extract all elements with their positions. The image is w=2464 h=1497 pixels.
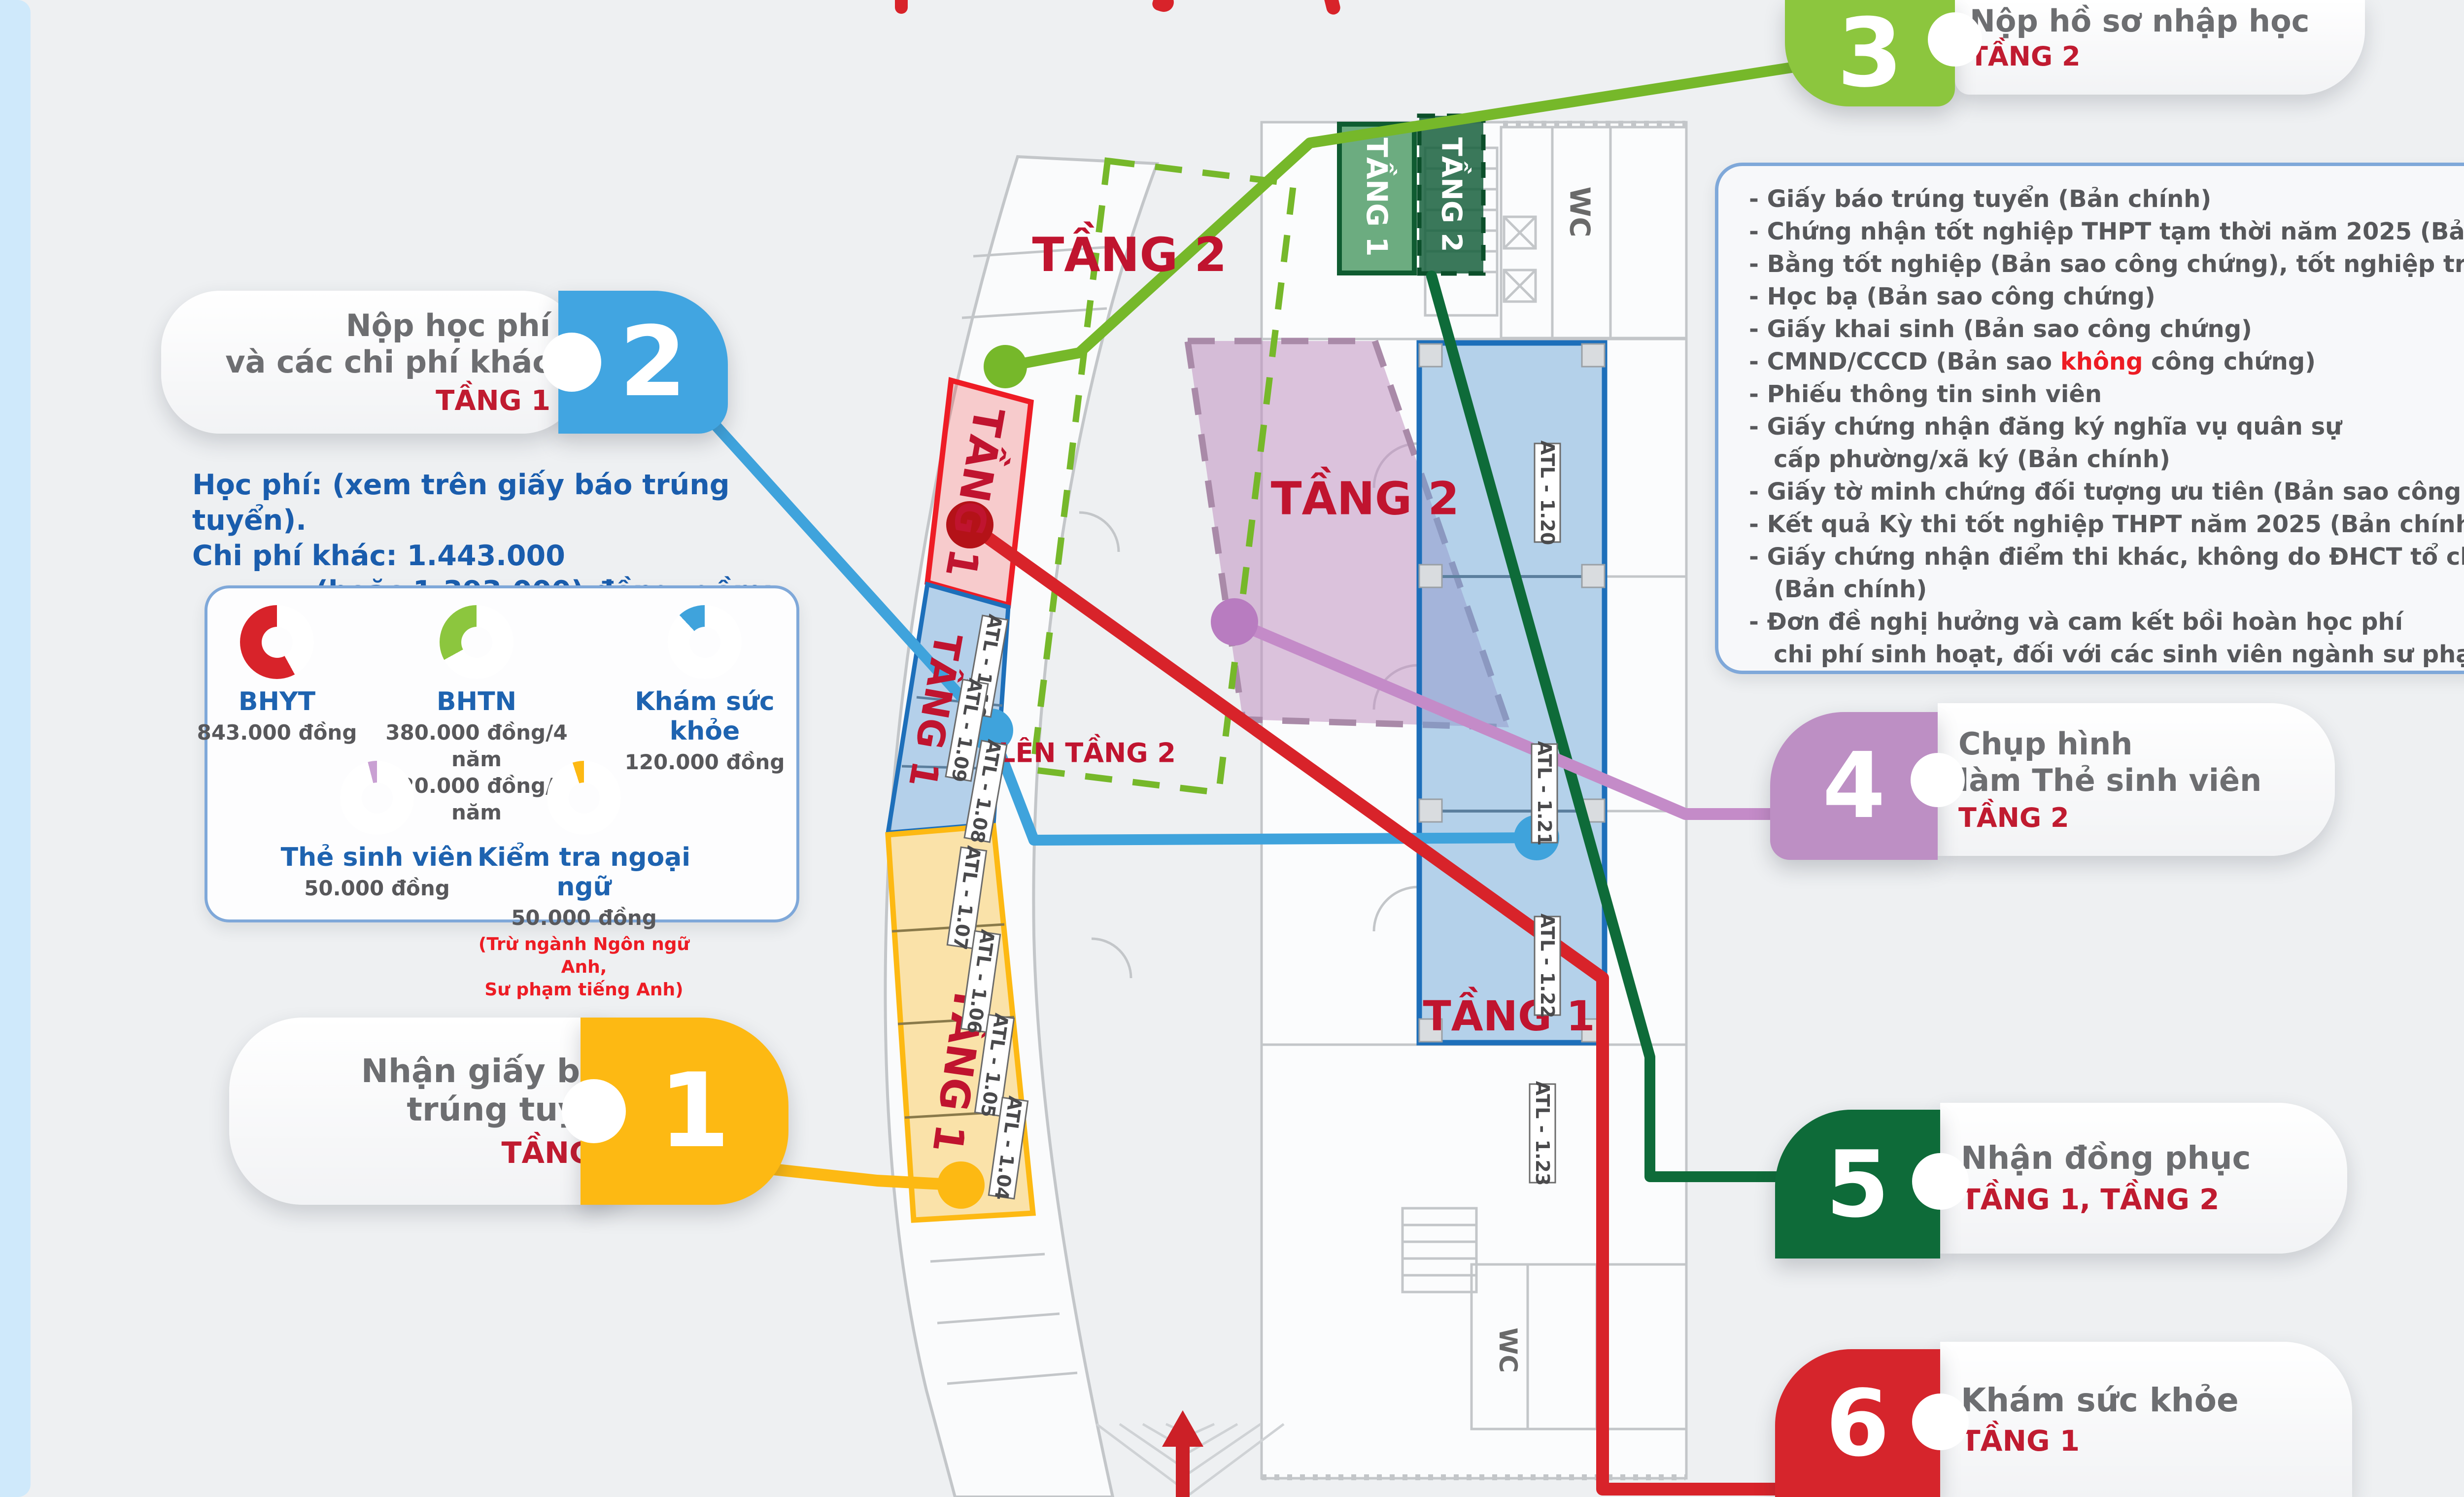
fee-amount: 50.000 đồng xyxy=(468,905,700,931)
doc-line: - Kết quả Kỳ thi tốt nghiệp THPT năm 202… xyxy=(1749,508,2464,541)
step4-title-line1: Chụp hình xyxy=(1958,726,2335,762)
step6-card: Khám sức khỏe TẦNG 1 xyxy=(1940,1342,2352,1497)
step4-card: Chụp hình làm Thẻ sinh viên TẦNG 2 xyxy=(1938,703,2335,856)
step2-card: Nộp học phí và các chi phí khác TẦNG 1 xyxy=(161,291,581,434)
fee-amount: 50.000 đồng xyxy=(261,875,493,902)
label-tang2-green-box: TẦNG 2 xyxy=(1436,137,1471,252)
fee-note: Sư phạm tiếng Anh) xyxy=(468,979,700,1001)
step1-number: 1 xyxy=(659,1052,730,1171)
label-len-tang2: LÊN TẦNG 2 xyxy=(998,734,1176,769)
svg-text:ATL - 1.21: ATL - 1.21 xyxy=(1534,741,1555,846)
doc-line: - Phiếu thông tin sinh viên xyxy=(1749,378,2464,410)
dot-step1 xyxy=(937,1161,985,1209)
svg-text:ATL - 1.22: ATL - 1.22 xyxy=(1537,914,1558,1019)
step6-title-line1: Khám sức khỏe xyxy=(1961,1381,2352,1420)
doc-line: - Giấy chứng nhận điểm thi khác, không d… xyxy=(1749,541,2464,573)
step4-floor: TẦNG 2 xyxy=(1958,802,2335,833)
fee-bhyt: BHYT 843.000 đồng xyxy=(173,605,380,746)
fee-name: Khám sức khỏe xyxy=(604,687,806,746)
title-fragment xyxy=(1321,0,1341,15)
doc-line: - Học bạ (Bản sao công chứng) xyxy=(1749,280,2464,313)
fee-note: (Trừ ngành Ngôn ngữ Anh, xyxy=(468,933,700,979)
step3-number: 3 xyxy=(1837,0,1903,108)
step6-floor: TẦNG 1 xyxy=(1961,1424,2352,1458)
room-label-atl-1-21: ATL - 1.21 xyxy=(1532,741,1557,846)
svg-text:ATL - 1.20: ATL - 1.20 xyxy=(1537,441,1558,545)
dot-step3 xyxy=(984,345,1027,388)
step2-floor: TẦNG 1 xyxy=(161,385,550,417)
step3-title-line1: Nộp hồ sơ nhập học xyxy=(1970,3,2365,39)
kiem-tra-ngoai-ngu-donut-chart xyxy=(547,761,621,835)
step4-number: 4 xyxy=(1822,733,1885,839)
step5-notch xyxy=(1912,1153,1969,1210)
doc-line: - Giấy chứng nhận đăng ký nghĩa vụ quân … xyxy=(1749,410,2464,443)
step6-notch xyxy=(1912,1394,1969,1450)
doc-line: - Bằng tốt nghiệp (Bản sao công chứng), … xyxy=(1749,248,2464,280)
tuition-line1: Học phí: (xem trên giấy báo trúng tuyển)… xyxy=(192,467,823,538)
fee-name: Kiểm tra ngoại ngữ xyxy=(468,843,700,902)
step2-number: 2 xyxy=(619,306,686,418)
wc-label-bottom: WC xyxy=(1494,1327,1522,1373)
label-tang2-dashed: TẦNG 2 xyxy=(1032,221,1227,282)
room-label-atl-1-22: ATL - 1.22 xyxy=(1535,914,1560,1019)
bhyt-donut-chart xyxy=(240,605,314,679)
wc-label-top: WC xyxy=(1564,187,1596,238)
doc-line: - Đơn đề nghị hưởng và cam kết bồi hoàn … xyxy=(1749,606,2464,638)
label-tang1-green-box: TẦNG 1 xyxy=(1360,137,1398,256)
fee-the-sinh-vien: Thẻ sinh viên 50.000 đồng xyxy=(261,761,493,902)
room-label-atl-1-23: ATL - 1.23 xyxy=(1530,1081,1555,1186)
svg-text:ATL - 1.23: ATL - 1.23 xyxy=(1532,1081,1553,1186)
step3-number-panel: 3 xyxy=(1785,0,1955,106)
doc-line: (Bản chính) xyxy=(1749,573,2464,606)
fee-amount: 843.000 đồng xyxy=(173,719,380,746)
bhtn-donut-chart xyxy=(440,605,513,679)
doc-line: - Giấy tờ minh chứng đối tượng ưu tiên (… xyxy=(1749,476,2464,508)
step1-floor: TẦNG 1 xyxy=(229,1136,624,1170)
label-tang1-blue-right: TẦNG 1 xyxy=(1423,987,1595,1040)
the-sinh-vien-donut-chart xyxy=(340,761,414,835)
tuition-line2: Chi phí khác: 1.443.000 xyxy=(192,538,823,574)
fee-name: Thẻ sinh viên xyxy=(261,843,493,872)
step6-number: 6 xyxy=(1826,1370,1889,1477)
cutoff-title-fragments xyxy=(862,0,1385,15)
step1-title-line1: Nhận giấy báo xyxy=(229,1052,624,1090)
doc-line-cmnd: - CMND/CCCD (Bản sao không công chứng) xyxy=(1749,345,2464,378)
doc-line: - Giấy báo trúng tuyển (Bản chính) xyxy=(1749,183,2464,215)
region-tang1-blue-right xyxy=(1419,343,1605,1043)
entrance-arrow xyxy=(1162,1410,1203,1497)
doc-line: cấp phường/xã ký (Bản chính) xyxy=(1749,443,2464,476)
infographic-page: TẦNG 2 TẦNG 2 TẦNG 1 TẦNG 1 TẦNG 1 TẦNG … xyxy=(0,0,2464,1497)
doc-line: - Chứng nhận tốt nghiệp THPT tạm thời nă… xyxy=(1749,215,2464,248)
step3-notch xyxy=(1928,12,1982,67)
dot-step4 xyxy=(1211,598,1258,646)
doc-line: chi phí sinh hoạt, đối với các sinh viên… xyxy=(1749,638,2464,671)
step4-title-line2: làm Thẻ sinh viên xyxy=(1958,762,2335,798)
doc-line: - Giấy khai sinh (Bản sao công chứng) xyxy=(1749,313,2464,345)
step3-floor: TẦNG 2 xyxy=(1970,41,2365,72)
step5-floor: TẦNG 1, TẦNG 2 xyxy=(1961,1183,2347,1216)
step2-title-line1: Nộp học phí xyxy=(161,307,550,343)
step4-notch xyxy=(1911,753,1965,807)
kham-suc-khoe-donut-chart xyxy=(668,605,742,679)
fee-name: BHTN xyxy=(363,687,590,716)
step5-card: Nhận đồng phục TẦNG 1, TẦNG 2 xyxy=(1940,1103,2347,1254)
title-fragment xyxy=(1151,0,1176,15)
title-fragment xyxy=(895,0,908,14)
step3-card: Nộp hồ sơ nhập học TẦNG 2 xyxy=(1955,0,2365,95)
step2-title-line2: và các chi phí khác xyxy=(161,344,550,380)
step5-number: 5 xyxy=(1826,1131,1889,1238)
step2-notch xyxy=(542,333,601,392)
fee-name: BHYT xyxy=(173,687,380,716)
fee-kham-suc-khoe: Khám sức khỏe 120.000 đồng xyxy=(604,605,806,776)
documents-box: - Giấy báo trúng tuyển (Bản chính) - Chứ… xyxy=(1715,163,2464,674)
step1-notch xyxy=(562,1079,626,1143)
fee-kiem-tra-ngoai-ngu: Kiểm tra ngoại ngữ 50.000 đồng (Trừ ngàn… xyxy=(468,761,700,1001)
room-label-atl-1-20: ATL - 1.20 xyxy=(1535,441,1560,545)
doc-highlight: không xyxy=(2060,348,2143,375)
step5-title-line1: Nhận đồng phục xyxy=(1961,1140,2347,1178)
label-tang2-purple: TẦNG 2 xyxy=(1271,466,1460,525)
